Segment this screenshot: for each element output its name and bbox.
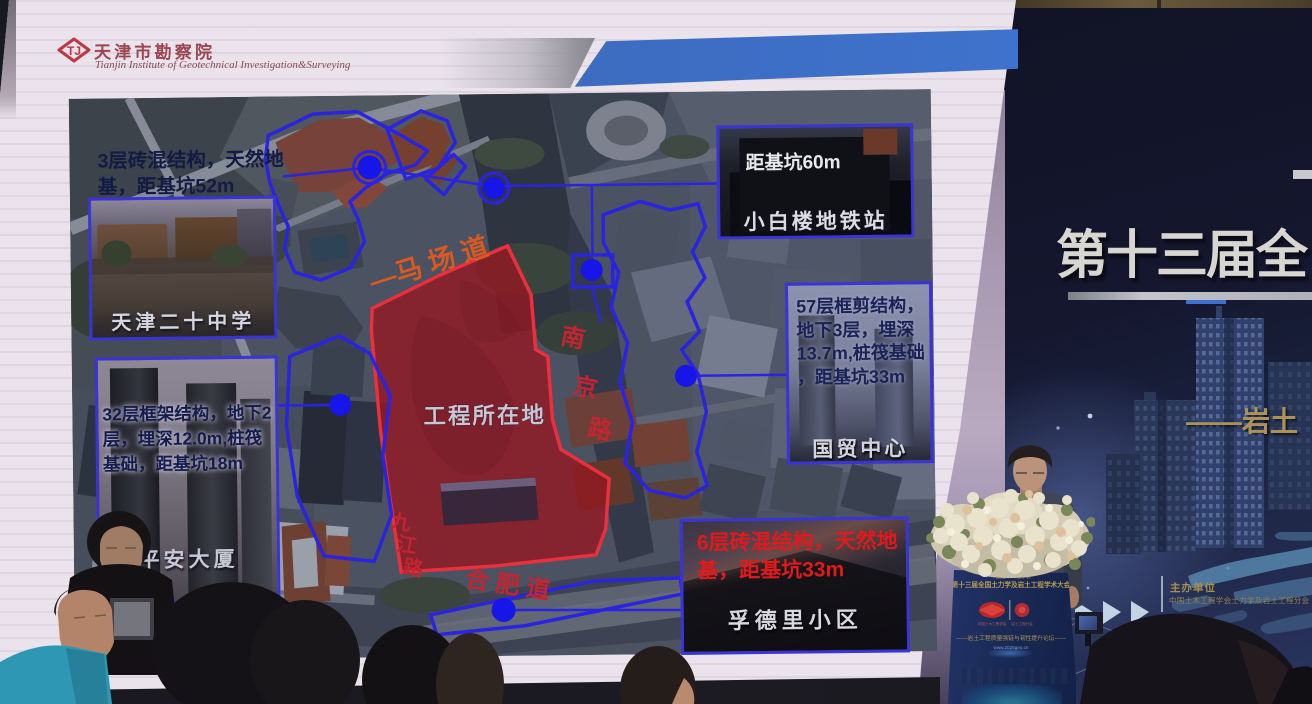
svg-text:工程所在地: 工程所在地 (423, 402, 546, 428)
